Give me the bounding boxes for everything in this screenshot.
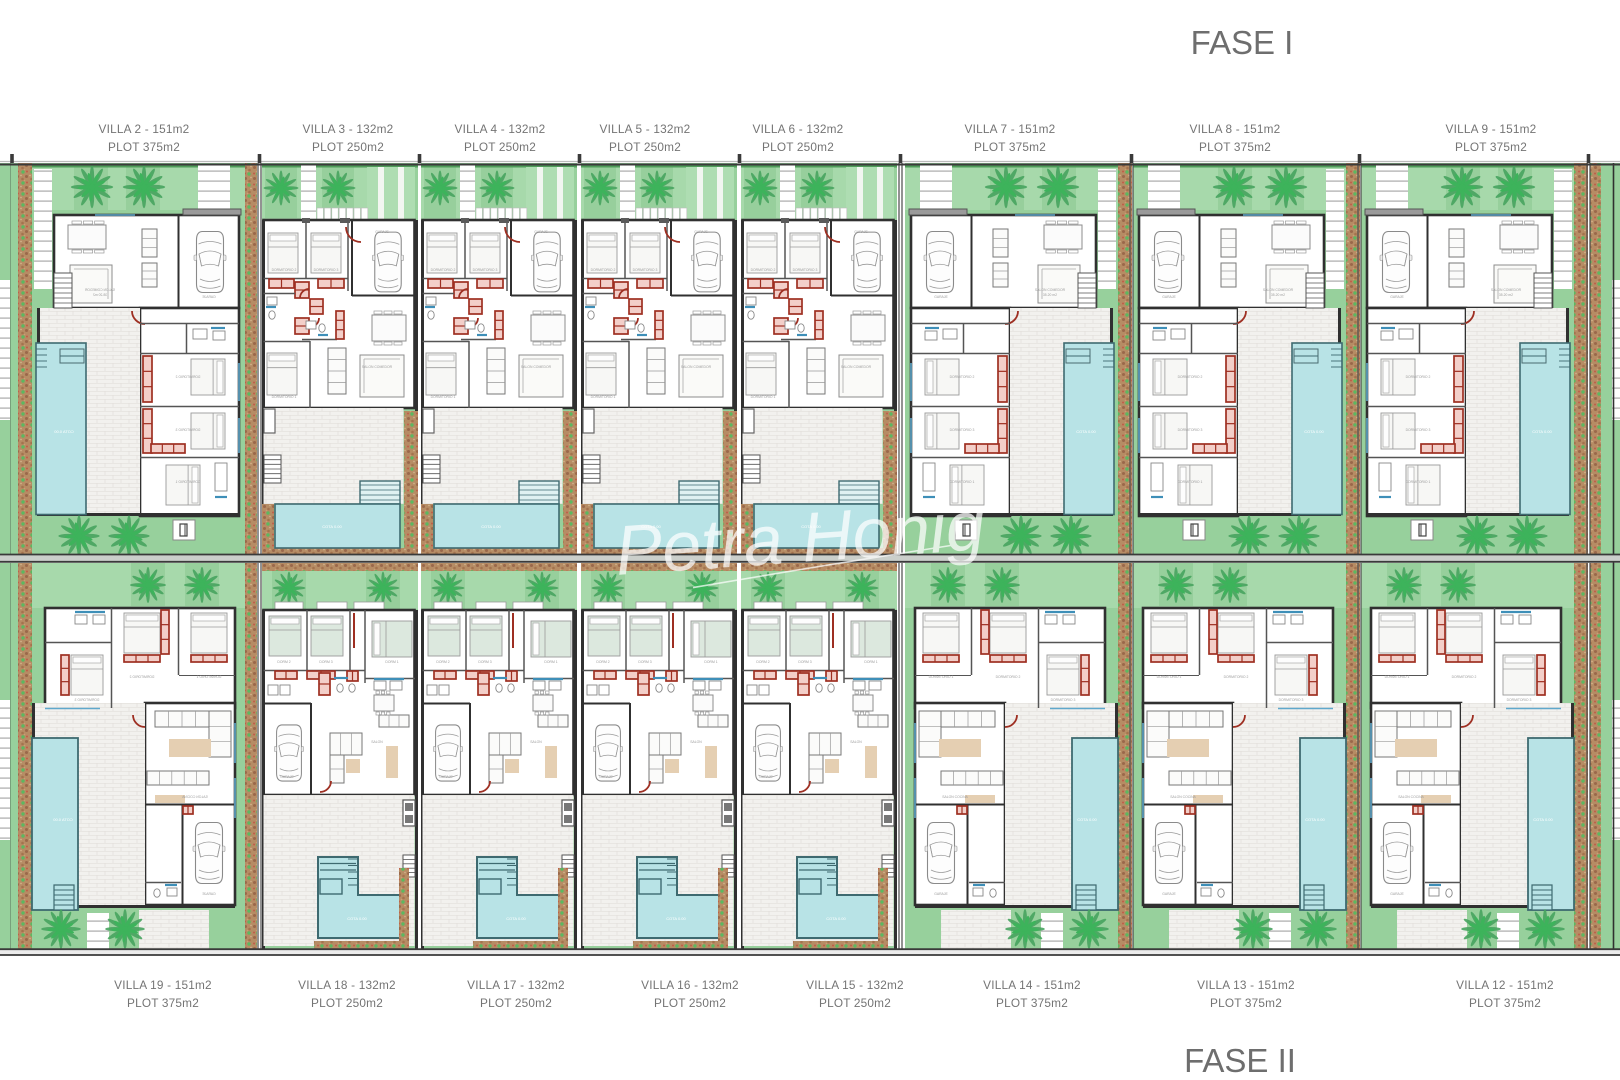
svg-text:PLOT 250m2: PLOT 250m2: [480, 996, 552, 1010]
svg-text:DORMITORIO 2: DORMITORIO 2: [996, 675, 1021, 679]
svg-text:DORM 3: DORM 3: [638, 660, 651, 664]
svg-text:PLOT 250m2: PLOT 250m2: [762, 140, 834, 154]
svg-text:DORMITORIO 3: DORMITORIO 3: [950, 428, 975, 432]
svg-text:COTA 0.00: COTA 0.00: [1305, 817, 1325, 822]
svg-text:DORM 1: DORM 1: [385, 660, 398, 664]
svg-text:35.20 m2: 35.20 m2: [1271, 293, 1285, 297]
svg-text:GARAJE: GARAJE: [201, 892, 215, 896]
svg-text:DORM 1: DORM 1: [864, 660, 877, 664]
svg-text:COTA 0.00: COTA 0.00: [53, 429, 73, 434]
svg-text:COTA 0.00: COTA 0.00: [481, 524, 501, 529]
svg-text:SALON: SALON: [371, 740, 383, 744]
svg-text:SALON COMEDOR: SALON COMEDOR: [362, 365, 393, 369]
svg-text:SALON: SALON: [530, 740, 542, 744]
svg-text:35.20 m2: 35.20 m2: [93, 293, 107, 297]
svg-text:PLOT 250m2: PLOT 250m2: [311, 996, 383, 1010]
svg-text:DORM 1: DORM 1: [544, 660, 557, 664]
svg-text:DORMITORIO 1: DORMITORIO 1: [175, 480, 200, 484]
svg-text:VILLA 12 - 151m2: VILLA 12 - 151m2: [1456, 978, 1554, 992]
svg-text:DORMITORIO 2: DORMITORIO 2: [1178, 375, 1203, 379]
svg-text:VILLA 15 - 132m2: VILLA 15 - 132m2: [806, 978, 904, 992]
svg-text:SALON COMEDOR: SALON COMEDOR: [681, 365, 712, 369]
svg-text:DORMITORIO 1: DORMITORIO 1: [929, 675, 954, 679]
svg-text:VILLA 4 - 132m2: VILLA 4 - 132m2: [455, 122, 546, 136]
svg-text:PLOT 375m2: PLOT 375m2: [974, 140, 1046, 154]
svg-text:GARAJE: GARAJE: [1162, 892, 1176, 896]
svg-text:DORMITORIO 2: DORMITORIO 2: [272, 268, 297, 272]
svg-text:PLOT 250m2: PLOT 250m2: [609, 140, 681, 154]
svg-text:SALON COCINA: SALON COCINA: [1398, 795, 1424, 799]
svg-text:PLOT 375m2: PLOT 375m2: [1469, 996, 1541, 1010]
svg-text:SALON: SALON: [850, 740, 862, 744]
svg-text:FASE I: FASE I: [1191, 24, 1294, 61]
svg-text:COTA 0.00: COTA 0.00: [322, 524, 342, 529]
svg-text:DORMITORIO 1: DORMITORIO 1: [950, 480, 975, 484]
svg-text:FASE II: FASE II: [1184, 1042, 1296, 1079]
svg-text:SALON COCINA: SALON COCINA: [942, 795, 968, 799]
svg-text:DORMITORIO 3: DORMITORIO 3: [175, 428, 200, 432]
svg-text:DORMITORIO 3: DORMITORIO 3: [1507, 698, 1532, 702]
svg-text:COTA 0.00: COTA 0.00: [666, 916, 686, 921]
svg-text:VILLA 7 - 151m2: VILLA 7 - 151m2: [965, 122, 1056, 136]
svg-text:VILLA 2 - 151m2: VILLA 2 - 151m2: [99, 122, 190, 136]
svg-text:DORMITORIO 3: DORMITORIO 3: [1178, 428, 1203, 432]
svg-text:DORMITORIO 1: DORMITORIO 1: [431, 395, 456, 399]
svg-text:VILLA 6 - 132m2: VILLA 6 - 132m2: [753, 122, 844, 136]
svg-text:SALON COCINA: SALON COCINA: [1170, 795, 1196, 799]
svg-text:DORMITORIO 1: DORMITORIO 1: [1157, 675, 1182, 679]
svg-text:GARAJE: GARAJE: [280, 775, 294, 779]
svg-text:DORM 1: DORM 1: [704, 660, 717, 664]
svg-text:GARAJE: GARAJE: [1390, 295, 1404, 299]
svg-text:PLOT 250m2: PLOT 250m2: [819, 996, 891, 1010]
svg-text:DORMITORIO 1: DORMITORIO 1: [591, 395, 616, 399]
svg-text:PLOT 375m2: PLOT 375m2: [1455, 140, 1527, 154]
svg-text:GARAJE: GARAJE: [694, 230, 708, 234]
svg-text:SALON COMEDOR: SALON COMEDOR: [1263, 288, 1294, 292]
svg-text:VILLA 3 - 132m2: VILLA 3 - 132m2: [303, 122, 394, 136]
svg-text:SALON COMEDOR: SALON COMEDOR: [1491, 288, 1522, 292]
svg-text:GARAJE: GARAJE: [439, 775, 453, 779]
svg-text:VILLA 17 - 132m2: VILLA 17 - 132m2: [467, 978, 565, 992]
svg-text:DORMITORIO 2: DORMITORIO 2: [1452, 675, 1477, 679]
svg-text:COTA 0.00: COTA 0.00: [52, 817, 72, 822]
svg-text:COTA 0.00: COTA 0.00: [1304, 429, 1324, 434]
svg-text:GARAJE: GARAJE: [759, 775, 773, 779]
svg-text:PLOT 250m2: PLOT 250m2: [654, 996, 726, 1010]
svg-text:VILLA 16 - 132m2: VILLA 16 - 132m2: [641, 978, 739, 992]
svg-text:GARAJE: GARAJE: [934, 295, 948, 299]
svg-text:PLOT 375m2: PLOT 375m2: [1210, 996, 1282, 1010]
svg-text:COTA 0.00: COTA 0.00: [826, 916, 846, 921]
svg-text:GARAJE: GARAJE: [599, 775, 613, 779]
svg-text:COTA 0.00: COTA 0.00: [1077, 817, 1097, 822]
svg-text:COTA 0.00: COTA 0.00: [1533, 817, 1553, 822]
svg-text:DORMITORIO 3: DORMITORIO 3: [1051, 698, 1076, 702]
svg-text:DORMITORIO 2: DORMITORIO 2: [751, 268, 776, 272]
svg-text:DORMITORIO 2: DORMITORIO 2: [1224, 675, 1249, 679]
svg-text:VILLA 14 - 151m2: VILLA 14 - 151m2: [983, 978, 1081, 992]
svg-text:DORMITORIO 2: DORMITORIO 2: [950, 375, 975, 379]
svg-text:DORMITORIO 3: DORMITORIO 3: [1279, 698, 1304, 702]
svg-text:PLOT 250m2: PLOT 250m2: [464, 140, 536, 154]
svg-text:COTA 0.00: COTA 0.00: [347, 916, 367, 921]
svg-text:DORMITORIO 1: DORMITORIO 1: [1406, 480, 1431, 484]
svg-text:GARAJE: GARAJE: [201, 295, 215, 299]
svg-text:DORM 2: DORM 2: [596, 660, 609, 664]
svg-text:PLOT 375m2: PLOT 375m2: [1199, 140, 1271, 154]
svg-text:DORMITORIO 1: DORMITORIO 1: [1178, 480, 1203, 484]
svg-text:COTA 0.00: COTA 0.00: [506, 916, 526, 921]
svg-text:VILLA 19 - 151m2: VILLA 19 - 151m2: [114, 978, 212, 992]
svg-text:VILLA 5 - 132m2: VILLA 5 - 132m2: [600, 122, 691, 136]
svg-text:DORM 2: DORM 2: [756, 660, 769, 664]
svg-text:DORM 3: DORM 3: [319, 660, 332, 664]
svg-text:DORMITORIO 1: DORMITORIO 1: [751, 395, 776, 399]
svg-text:VILLA 18 - 132m2: VILLA 18 - 132m2: [298, 978, 396, 992]
svg-text:PLOT 250m2: PLOT 250m2: [312, 140, 384, 154]
svg-text:PLOT 375m2: PLOT 375m2: [108, 140, 180, 154]
svg-text:DORMITORIO 1: DORMITORIO 1: [196, 675, 221, 679]
svg-text:DORMITORIO 3: DORMITORIO 3: [74, 698, 99, 702]
svg-text:DORMITORIO 2: DORMITORIO 2: [1406, 375, 1431, 379]
svg-text:VILLA 9 - 151m2: VILLA 9 - 151m2: [1446, 122, 1537, 136]
svg-text:GARAJE: GARAJE: [534, 230, 548, 234]
svg-text:DORM 3: DORM 3: [798, 660, 811, 664]
svg-text:VILLA 13 - 151m2: VILLA 13 - 151m2: [1197, 978, 1295, 992]
svg-text:DORMITORIO 3: DORMITORIO 3: [793, 268, 818, 272]
svg-text:DORMITORIO 2: DORMITORIO 2: [129, 675, 154, 679]
svg-text:PLOT 375m2: PLOT 375m2: [996, 996, 1068, 1010]
svg-text:35.20 m2: 35.20 m2: [1043, 293, 1057, 297]
svg-text:DORMITORIO 2: DORMITORIO 2: [431, 268, 456, 272]
svg-text:COTA 0.00: COTA 0.00: [1532, 429, 1552, 434]
svg-text:DORMITORIO 1: DORMITORIO 1: [1385, 675, 1410, 679]
svg-text:PLOT 375m2: PLOT 375m2: [127, 996, 199, 1010]
svg-text:SALON COMEDOR: SALON COMEDOR: [1035, 288, 1066, 292]
svg-text:GARAJE: GARAJE: [1390, 892, 1404, 896]
svg-text:GARAJE: GARAJE: [1162, 295, 1176, 299]
svg-text:DORMITORIO 3: DORMITORIO 3: [633, 268, 658, 272]
svg-text:DORM 2: DORM 2: [436, 660, 449, 664]
svg-text:DORMITORIO 3: DORMITORIO 3: [1406, 428, 1431, 432]
svg-text:GARAJE: GARAJE: [934, 892, 948, 896]
svg-text:SALON COMEDOR: SALON COMEDOR: [84, 288, 115, 292]
svg-text:GARAJE: GARAJE: [375, 230, 389, 234]
svg-text:SALON COMEDOR: SALON COMEDOR: [521, 365, 552, 369]
svg-text:GARAJE: GARAJE: [854, 230, 868, 234]
svg-text:COTA 0.00: COTA 0.00: [1076, 429, 1096, 434]
svg-text:35.20 m2: 35.20 m2: [1499, 293, 1513, 297]
svg-text:DORMITORIO 3: DORMITORIO 3: [314, 268, 339, 272]
svg-text:DORM 3: DORM 3: [478, 660, 491, 664]
svg-text:DORMITORIO 2: DORMITORIO 2: [175, 375, 200, 379]
svg-text:DORMITORIO 3: DORMITORIO 3: [473, 268, 498, 272]
svg-text:DORMITORIO 1: DORMITORIO 1: [272, 395, 297, 399]
svg-text:DORMITORIO 2: DORMITORIO 2: [591, 268, 616, 272]
svg-text:SALON: SALON: [690, 740, 702, 744]
svg-text:SALON COCINA: SALON COCINA: [181, 795, 207, 799]
svg-text:DORM 2: DORM 2: [277, 660, 290, 664]
svg-text:VILLA 8 - 151m2: VILLA 8 - 151m2: [1190, 122, 1281, 136]
svg-text:SALON COMEDOR: SALON COMEDOR: [841, 365, 872, 369]
